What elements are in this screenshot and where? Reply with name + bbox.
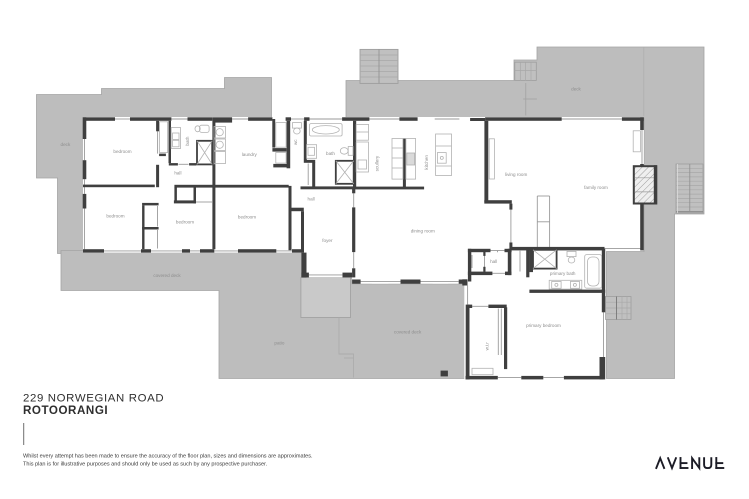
svg-text:scullery: scullery: [374, 155, 379, 171]
svg-text:covered deck: covered deck: [153, 273, 181, 278]
svg-text:ROTOORANGI: ROTOORANGI: [23, 404, 108, 417]
svg-text:laundry: laundry: [242, 152, 258, 157]
svg-text:primary bath: primary bath: [550, 271, 576, 276]
svg-text:bedroom: bedroom: [106, 214, 124, 219]
svg-text:hall: hall: [490, 259, 497, 264]
svg-text:foyer: foyer: [322, 238, 333, 243]
svg-text:deck: deck: [571, 87, 581, 92]
svg-text:bath: bath: [185, 136, 190, 145]
svg-text:primary bedroom: primary bedroom: [526, 323, 561, 328]
svg-text:deck: deck: [61, 142, 71, 147]
svg-text:bedroom: bedroom: [176, 220, 194, 225]
svg-text:family room: family room: [584, 185, 608, 190]
svg-text:229 NORWEGIAN ROAD: 229 NORWEGIAN ROAD: [23, 393, 164, 405]
svg-text:patio: patio: [274, 340, 284, 345]
svg-text:bedroom: bedroom: [238, 215, 256, 220]
svg-text:dining room: dining room: [411, 229, 435, 234]
svg-text:wc: wc: [293, 139, 298, 145]
svg-text:kitchen: kitchen: [424, 155, 429, 170]
svg-text:bath: bath: [326, 151, 335, 156]
svg-text:w.i.r: w.i.r: [485, 342, 490, 351]
svg-text:hall: hall: [308, 197, 315, 202]
svg-text:hall: hall: [174, 170, 181, 175]
svg-text:Whilst every attempt has been: Whilst every attempt has been made to en…: [23, 454, 313, 460]
svg-text:bedroom: bedroom: [113, 149, 131, 154]
svg-text:This plan is for illustrative: This plan is for illustrative purposes a…: [23, 462, 268, 468]
svg-text:living room: living room: [505, 172, 527, 177]
svg-text:covered deck: covered deck: [394, 330, 422, 335]
